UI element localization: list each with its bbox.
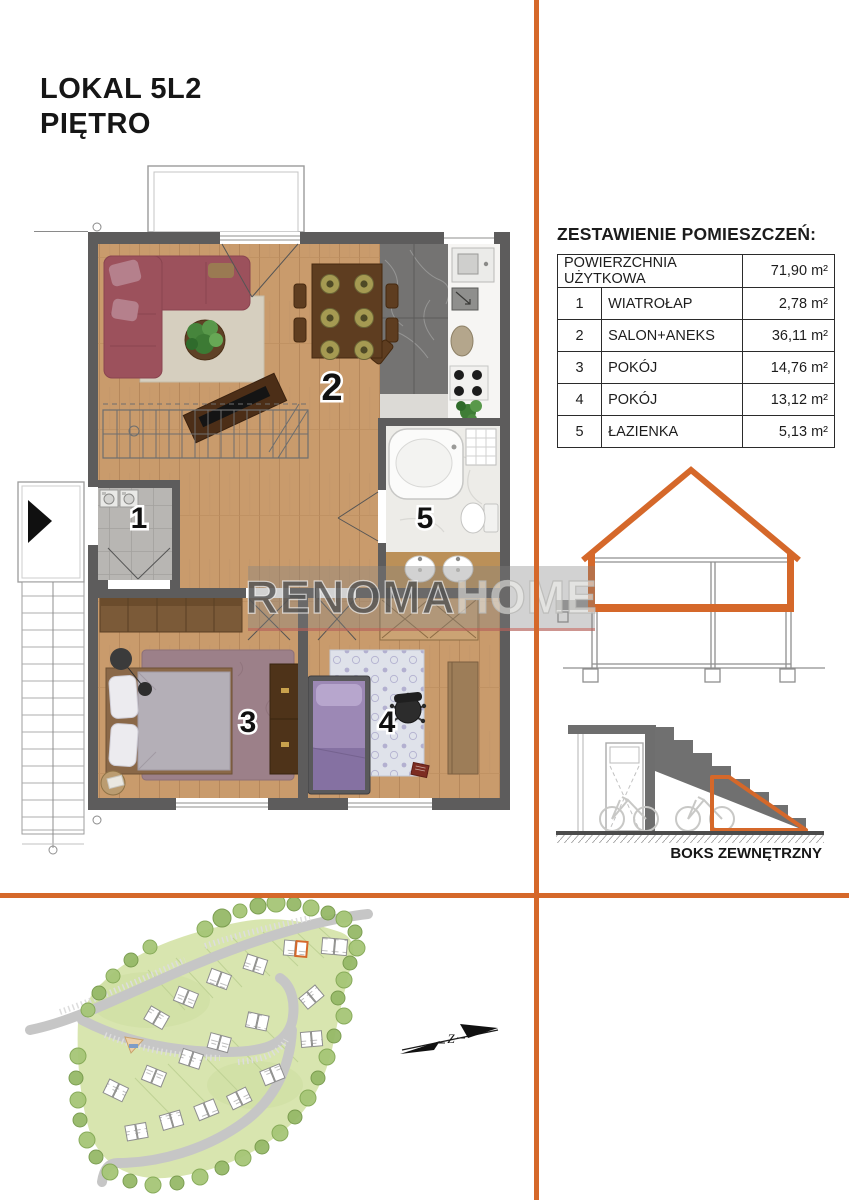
room-number-cell: 5 <box>558 416 602 448</box>
room-name-cell: ŁAZIENKA <box>602 416 743 448</box>
room-number-cell: 1 <box>558 288 602 320</box>
site-plan: Z <box>0 895 536 1200</box>
room-number-cell: 4 <box>558 384 602 416</box>
room-label-4: 4 <box>379 706 396 739</box>
room-area-cell: 14,76 m² <box>742 352 834 384</box>
bedroom3-furniture <box>101 648 300 795</box>
balcony <box>148 166 304 232</box>
orange-roof-outline <box>583 470 799 560</box>
total-area-cell: 71,90 m² <box>742 255 834 288</box>
table-row: 3 POKÓJ 14,76 m² <box>558 352 835 384</box>
room-name-cell: WIATROŁAP <box>602 288 743 320</box>
table-row: 1 WIATROŁAP 2,78 m² <box>558 288 835 320</box>
table-row: 4 POKÓJ 13,12 m² <box>558 384 835 416</box>
pendant-lamp-icon <box>110 648 132 670</box>
floor-plan-sheet: LOKAL 5L2 PIĘTRO <box>0 0 849 1200</box>
room-area-cell: 5,13 m² <box>742 416 834 448</box>
double-bed <box>106 668 232 774</box>
room-area-cell: 2,78 m² <box>742 288 834 320</box>
room-name-cell: SALON+ANEKS <box>602 320 743 352</box>
dresser <box>270 664 300 774</box>
compass-icon: Z <box>400 1024 498 1054</box>
small-box <box>411 762 429 777</box>
table-row: 5 ŁAZIENKA 5,13 m² <box>558 416 835 448</box>
room-label-3: 3 <box>240 706 257 739</box>
watermark: RENOMAHOME <box>248 566 595 631</box>
room-label-1: 1 <box>131 502 148 535</box>
single-bed <box>308 676 370 794</box>
stair-section: BOKS ZEWNĘTRZNY <box>556 725 824 862</box>
room-summary-panel: ZESTAWIENIE POMIESZCZEŃ: POWIERZCHNIA UŻ… <box>557 224 835 448</box>
total-label-cell: POWIERZCHNIA UŻYTKOWA <box>558 255 743 288</box>
radiator <box>466 429 496 465</box>
room-table-heading: ZESTAWIENIE POMIESZCZEŃ: <box>557 224 835 245</box>
room-table: POWIERZCHNIA UŻYTKOWA 71,90 m² 1 WIATROŁ… <box>557 254 835 448</box>
highlighted-plot <box>295 941 307 957</box>
room-area-cell: 13,12 m² <box>742 384 834 416</box>
room-label-5: 5 <box>417 502 434 535</box>
room-label-2: 2 <box>321 367 342 409</box>
room-name-cell: POKÓJ <box>602 352 743 384</box>
room-area-cell: 36,11 m² <box>742 320 834 352</box>
boks-label: BOKS ZEWNĘTRZNY <box>670 845 822 862</box>
watermark-text: RENOMAHOME <box>245 574 597 620</box>
horizontal-divider <box>0 893 849 898</box>
table-row: 2 SALON+ANEKS 36,11 m² <box>558 320 835 352</box>
exterior-stairs <box>18 482 84 854</box>
floor-name: PIĘTRO <box>40 107 202 142</box>
compass-label: Z <box>447 1031 455 1046</box>
room-name-cell: POKÓJ <box>602 384 743 416</box>
unit-name: LOKAL 5L2 <box>40 72 202 107</box>
toilet <box>461 503 498 533</box>
upper-floor-highlight <box>588 554 794 612</box>
room-number-cell: 3 <box>558 352 602 384</box>
coffee-table-plant <box>185 320 225 360</box>
table-row-total: POWIERZCHNIA UŻYTKOWA 71,90 m² <box>558 255 835 288</box>
page-title: LOKAL 5L2 PIĘTRO <box>40 72 202 142</box>
room-number-cell: 2 <box>558 320 602 352</box>
vertical-divider <box>534 0 539 1200</box>
